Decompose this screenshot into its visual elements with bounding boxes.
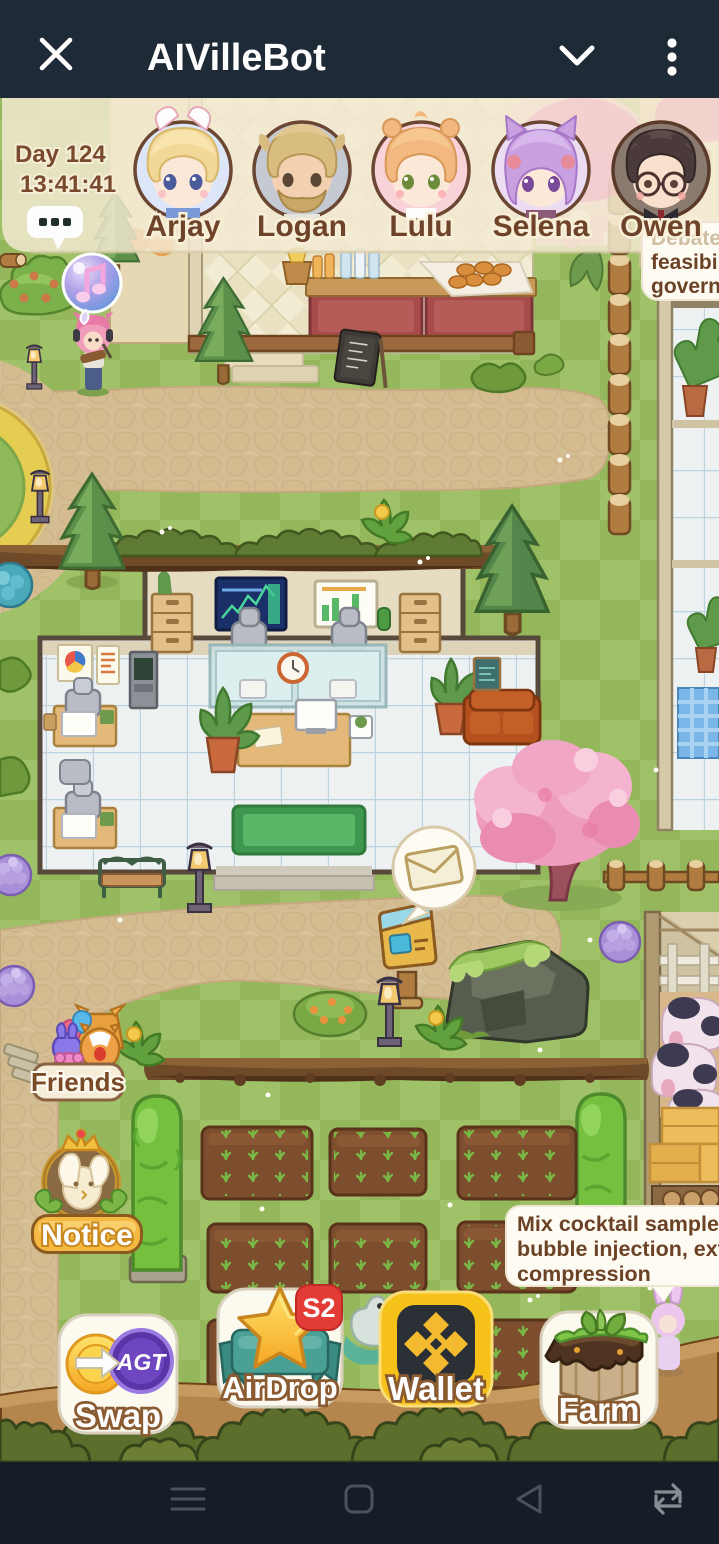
svg-text:Arjay: Arjay bbox=[145, 210, 220, 243]
svg-text:bubble injection, extrem: bubble injection, extrem bbox=[517, 1237, 719, 1261]
svg-text:AIVilleBot: AIVilleBot bbox=[147, 37, 326, 79]
svg-text:Day 124: Day 124 bbox=[15, 141, 106, 168]
svg-text:Logan: Logan bbox=[257, 210, 347, 243]
svg-text:Friends: Friends bbox=[31, 1067, 125, 1097]
svg-text:Mix cocktail samples (fo: Mix cocktail samples (fo bbox=[517, 1212, 719, 1236]
svg-text:feasibil: feasibil bbox=[651, 251, 719, 274]
svg-text:Notice: Notice bbox=[41, 1219, 133, 1252]
svg-text:Owen: Owen bbox=[620, 210, 702, 243]
svg-text:Selena: Selena bbox=[493, 210, 590, 243]
svg-text:AirDrop: AirDrop bbox=[222, 1370, 337, 1405]
svg-text:AGT: AGT bbox=[116, 1349, 168, 1375]
svg-text:S2: S2 bbox=[302, 1293, 335, 1323]
svg-text:Swap: Swap bbox=[75, 1397, 161, 1434]
svg-text:compression: compression bbox=[517, 1262, 651, 1286]
svg-text:Wallet: Wallet bbox=[388, 1370, 484, 1407]
svg-text:13:41:41: 13:41:41 bbox=[20, 171, 116, 198]
svg-text:Farm: Farm bbox=[559, 1391, 640, 1428]
svg-text:Lulu: Lulu bbox=[389, 210, 452, 243]
svg-text:governa: governa bbox=[651, 275, 719, 298]
